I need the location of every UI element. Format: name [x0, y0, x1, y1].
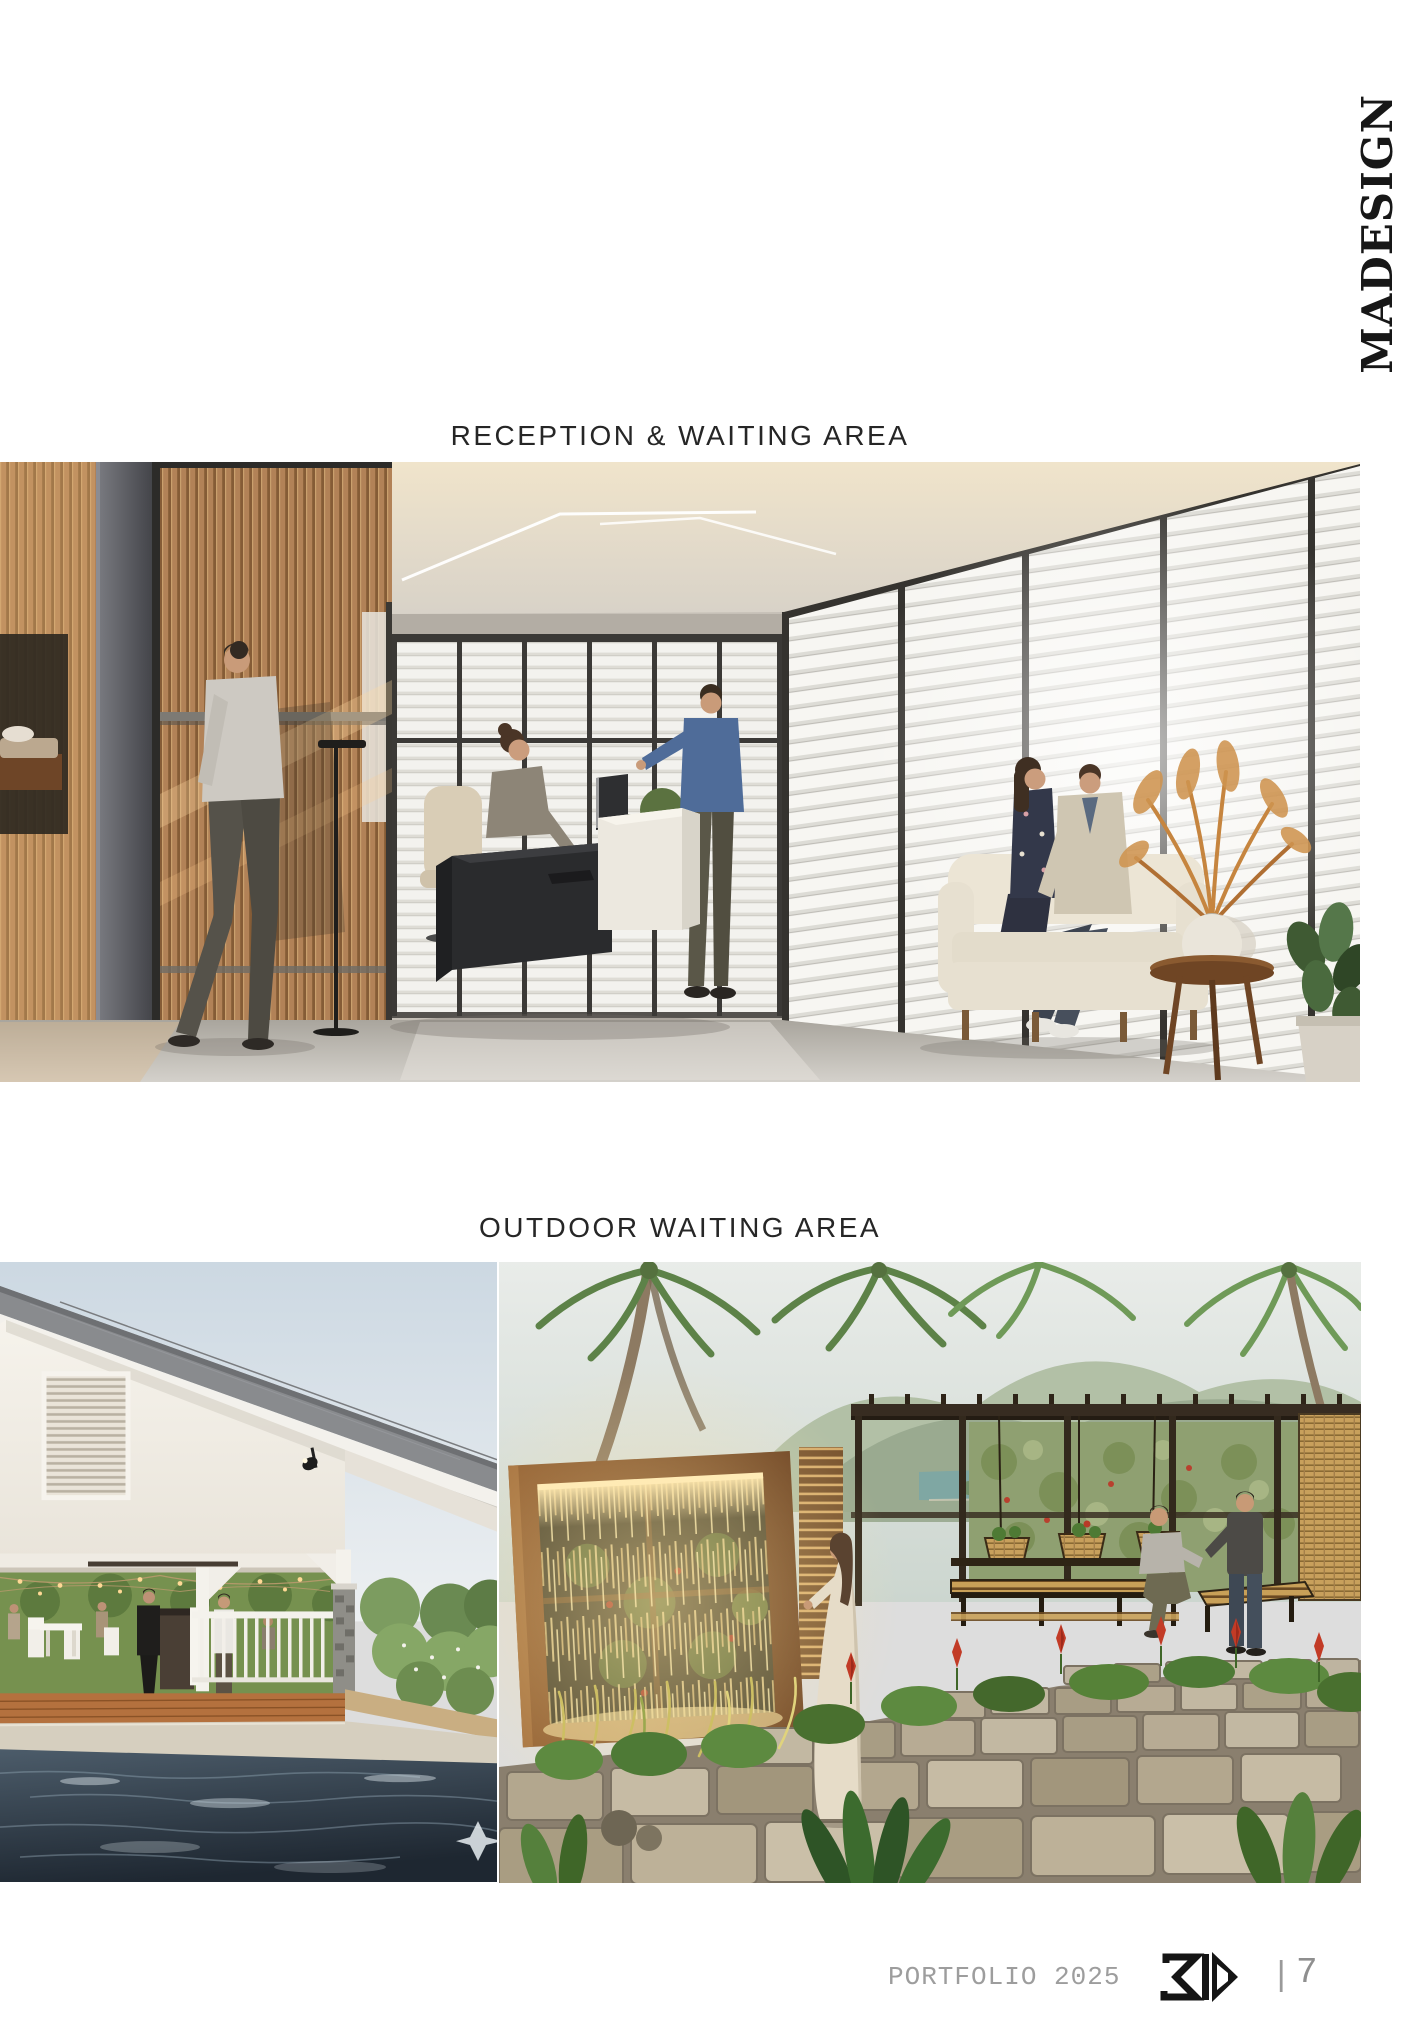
outdoor-garden-render-image — [499, 1262, 1361, 1883]
brand-vertical-label: MADESIGN — [1353, 94, 1402, 374]
section-heading-outdoor: OUTDOOR WAITING AREA — [0, 1212, 1360, 1244]
pool-pavilion-render-image — [0, 1262, 497, 1882]
reception-render-image — [0, 462, 1360, 1082]
section-heading-reception: RECEPTION & WAITING AREA — [0, 420, 1360, 452]
footer-portfolio-label: PORTFOLIO 2025 — [888, 1962, 1120, 1992]
portfolio-page: MADESIGN RECEPTION & WAITING AREA — [0, 0, 1428, 2028]
3d-logo-icon — [1156, 1950, 1240, 2004]
footer-separator: | — [1271, 1958, 1291, 1996]
footer-page-number: 7 — [1296, 1952, 1318, 1993]
